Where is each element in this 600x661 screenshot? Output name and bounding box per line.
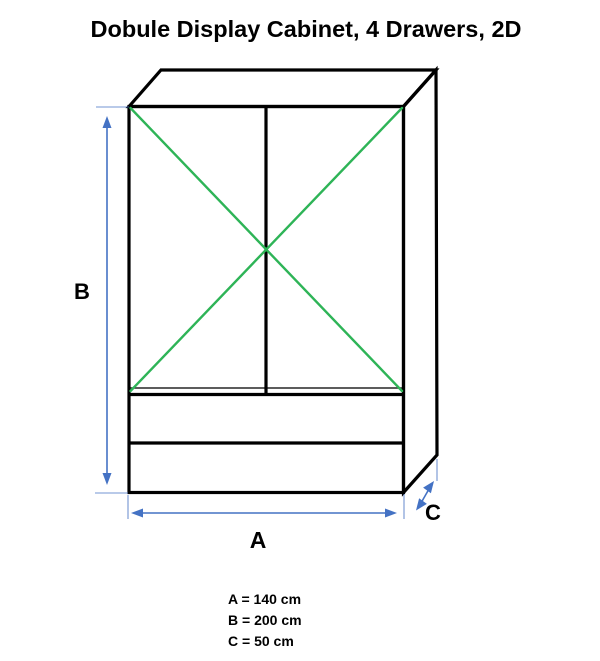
- cabinet-outline: [129, 70, 437, 493]
- dim-b-label: B: [74, 279, 90, 304]
- dim-a-arrow-left-icon: [131, 509, 143, 518]
- dim-b-arrow-down-icon: [103, 473, 112, 485]
- dim-b-arrow-up-icon: [103, 116, 112, 128]
- dimension-legend: A = 140 cm B = 200 cm C = 50 cm: [228, 591, 302, 649]
- dim-a-label: A: [250, 527, 267, 553]
- legend-line-b: B = 200 cm: [228, 612, 302, 628]
- cabinet-top-face: [129, 70, 436, 107]
- dim-c-arrow-upper-icon: [423, 481, 434, 493]
- dimension-height-b: B: [74, 107, 129, 493]
- dimension-width-a: A: [128, 494, 404, 553]
- dimension-depth-c: C: [416, 459, 441, 525]
- legend-line-a: A = 140 cm: [228, 591, 301, 607]
- diagram-page: Dobule Display Cabinet, 4 Drawers, 2D B: [0, 0, 600, 661]
- dim-a-arrow-right-icon: [385, 509, 397, 518]
- legend-line-c: C = 50 cm: [228, 633, 294, 649]
- dim-c-label: C: [425, 500, 441, 525]
- page-title: Dobule Display Cabinet, 4 Drawers, 2D: [91, 16, 522, 42]
- cabinet-diagram: Dobule Display Cabinet, 4 Drawers, 2D B: [0, 0, 600, 661]
- cabinet-side-face: [404, 70, 438, 493]
